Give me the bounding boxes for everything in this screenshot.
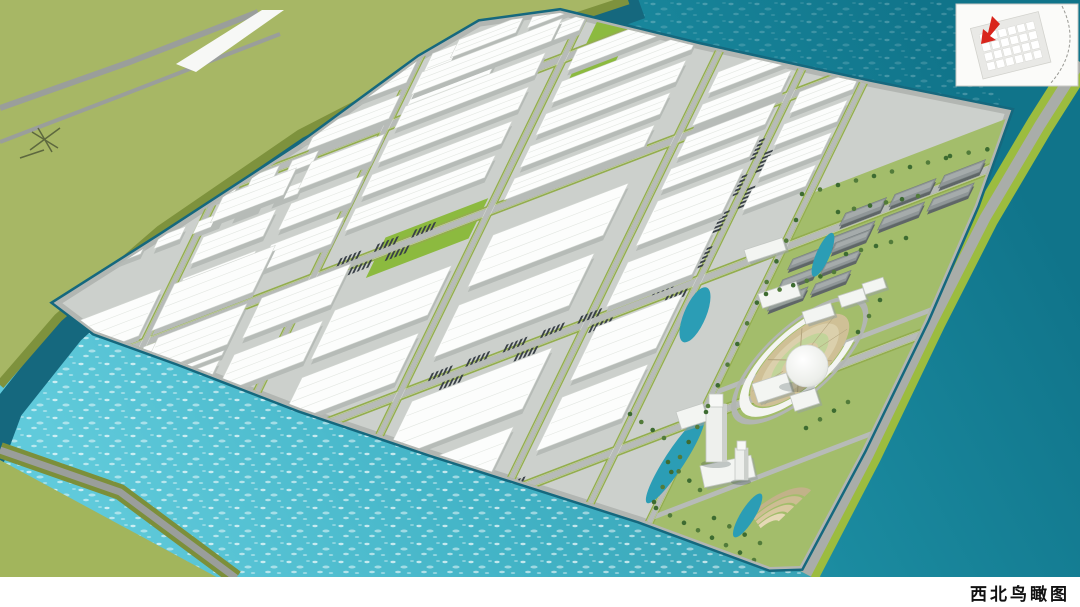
tree <box>698 488 703 493</box>
tree <box>800 192 805 197</box>
tree <box>706 404 711 409</box>
tree <box>738 550 743 555</box>
tree <box>712 516 717 521</box>
tree <box>774 259 779 264</box>
tree <box>878 298 883 303</box>
tree <box>867 314 872 319</box>
tree <box>859 248 864 253</box>
tree <box>682 521 687 526</box>
tree <box>654 506 659 511</box>
tree <box>854 178 859 183</box>
aerial-rendering <box>0 0 1080 577</box>
tree <box>791 283 796 288</box>
tree <box>832 408 837 413</box>
tree <box>884 200 889 205</box>
tree <box>908 165 913 170</box>
tree <box>916 194 921 199</box>
tree <box>832 270 837 275</box>
caption-bar: 西北鸟瞰图 <box>0 577 1080 607</box>
tree <box>668 513 673 518</box>
tree <box>710 535 715 540</box>
locator-inset-map <box>956 4 1078 86</box>
tree <box>735 342 740 347</box>
tree <box>696 528 701 533</box>
tree <box>758 541 763 546</box>
tree <box>724 543 729 548</box>
tree <box>704 410 709 415</box>
caption-title: 西北鸟瞰图 <box>970 580 1070 605</box>
tree <box>666 460 671 465</box>
tree <box>755 300 760 305</box>
tree <box>872 174 877 179</box>
tree <box>856 330 861 335</box>
tree <box>660 485 665 490</box>
tree <box>836 183 841 188</box>
tree <box>948 154 953 159</box>
tree <box>727 524 732 529</box>
tree <box>904 236 909 241</box>
tree <box>900 197 905 202</box>
tree <box>652 500 657 505</box>
tree <box>818 187 823 192</box>
tree <box>889 240 894 245</box>
tree <box>890 169 895 174</box>
tree <box>805 279 810 284</box>
tree <box>764 280 769 285</box>
tree <box>836 210 841 215</box>
tree <box>784 238 789 243</box>
aerial-rendering-page: 西北鸟瞰图 <box>0 0 1080 607</box>
tree <box>745 321 750 326</box>
tree <box>628 412 633 417</box>
tree <box>742 532 747 537</box>
tree <box>985 147 990 152</box>
tree <box>852 207 857 212</box>
tree <box>966 150 971 155</box>
tree <box>715 383 720 388</box>
tree <box>868 203 873 208</box>
tree <box>650 428 655 433</box>
tree <box>777 287 782 292</box>
tree <box>804 426 809 431</box>
tree <box>764 292 769 297</box>
tree <box>662 436 667 441</box>
tree <box>818 417 823 422</box>
tree <box>944 156 949 161</box>
tree <box>676 469 681 474</box>
tree <box>818 274 823 279</box>
tree <box>794 218 799 223</box>
tree <box>846 400 851 405</box>
tree <box>695 425 700 430</box>
tree <box>874 244 879 249</box>
tree <box>678 455 683 460</box>
tree <box>669 470 674 475</box>
tree <box>686 440 691 445</box>
tree <box>687 478 692 483</box>
tree <box>725 362 730 367</box>
tree <box>639 420 644 425</box>
tree <box>926 160 931 165</box>
tree <box>844 252 849 257</box>
